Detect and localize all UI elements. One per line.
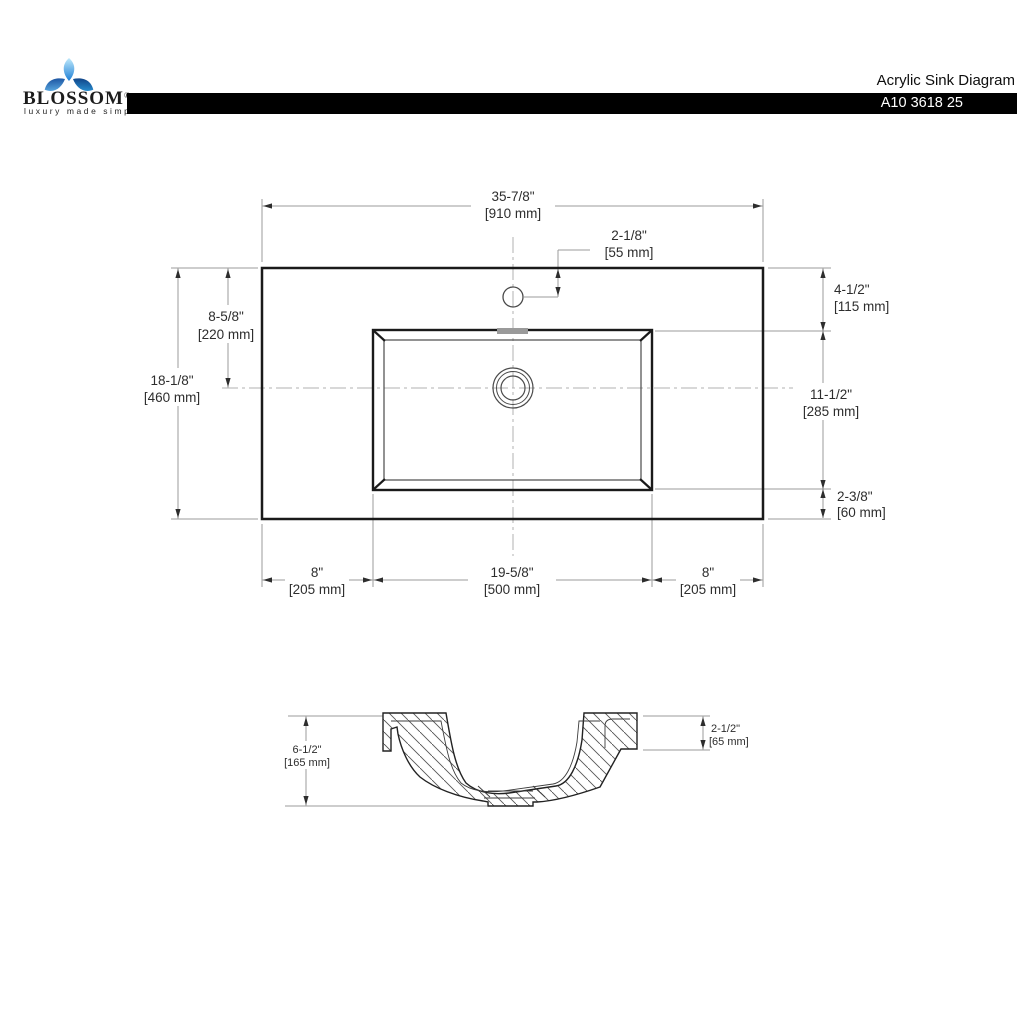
page: BLOSSOM® luxury made simple Acrylic Sink… xyxy=(0,0,1024,1024)
dim-basin-depth-in: 11-1/2" xyxy=(810,387,852,402)
dim-section-height-in: 6-1/2" xyxy=(293,744,322,756)
dimension-arrows xyxy=(175,203,825,582)
dim-overall-depth-mm: [460 mm] xyxy=(144,390,200,405)
dimension-labels: 35-7/8" [910 mm] 2-1/8" [55 mm] 18-1/8" … xyxy=(144,189,889,597)
overflow-slot xyxy=(497,328,528,334)
dim-basin-back-mm: [115 mm] xyxy=(834,299,889,314)
section-view: 6-1/2" [165 mm] 2-1/2" [65 mm] xyxy=(281,713,749,806)
dim-center-back-in: 8-5/8" xyxy=(208,309,244,324)
dim-center-back-mm: [220 mm] xyxy=(198,327,254,342)
dim-basin-back-in: 4-1/2" xyxy=(834,282,870,297)
dim-overall-width-in: 35-7/8" xyxy=(491,189,534,204)
dim-faucet-offset-mm: [55 mm] xyxy=(605,245,654,260)
section-dimension-lines xyxy=(285,716,710,806)
dim-overall-width-mm: [910 mm] xyxy=(485,206,541,221)
sink-section-profile xyxy=(383,713,637,806)
dim-section-height-mm: [165 mm] xyxy=(284,757,330,769)
dim-overall-depth-in: 18-1/8" xyxy=(150,373,193,388)
dim-right-margin-in: 8" xyxy=(702,565,715,580)
centerlines xyxy=(222,237,800,556)
section-labels: 6-1/2" [165 mm] 2-1/2" [65 mm] xyxy=(284,723,749,769)
dim-basin-front-mm: [60 mm] xyxy=(837,505,886,520)
dim-left-margin-in: 8" xyxy=(311,565,324,580)
dim-faucet-offset-in: 2-1/8" xyxy=(611,228,647,243)
dim-rim-height-mm: [65 mm] xyxy=(709,736,749,748)
dim-rim-height-in: 2-1/2" xyxy=(711,723,740,735)
dim-basin-width-mm: [500 mm] xyxy=(484,582,540,597)
dim-basin-depth-mm: [285 mm] xyxy=(803,404,859,419)
dim-basin-width-in: 19-5/8" xyxy=(490,565,533,580)
section-arrows xyxy=(303,717,705,805)
dim-left-margin-mm: [205 mm] xyxy=(289,582,345,597)
dimension-lines xyxy=(171,199,831,587)
dim-basin-front-in: 2-3/8" xyxy=(837,489,873,504)
dim-right-margin-mm: [205 mm] xyxy=(680,582,736,597)
top-view: 35-7/8" [910 mm] 2-1/8" [55 mm] 18-1/8" … xyxy=(138,186,889,598)
